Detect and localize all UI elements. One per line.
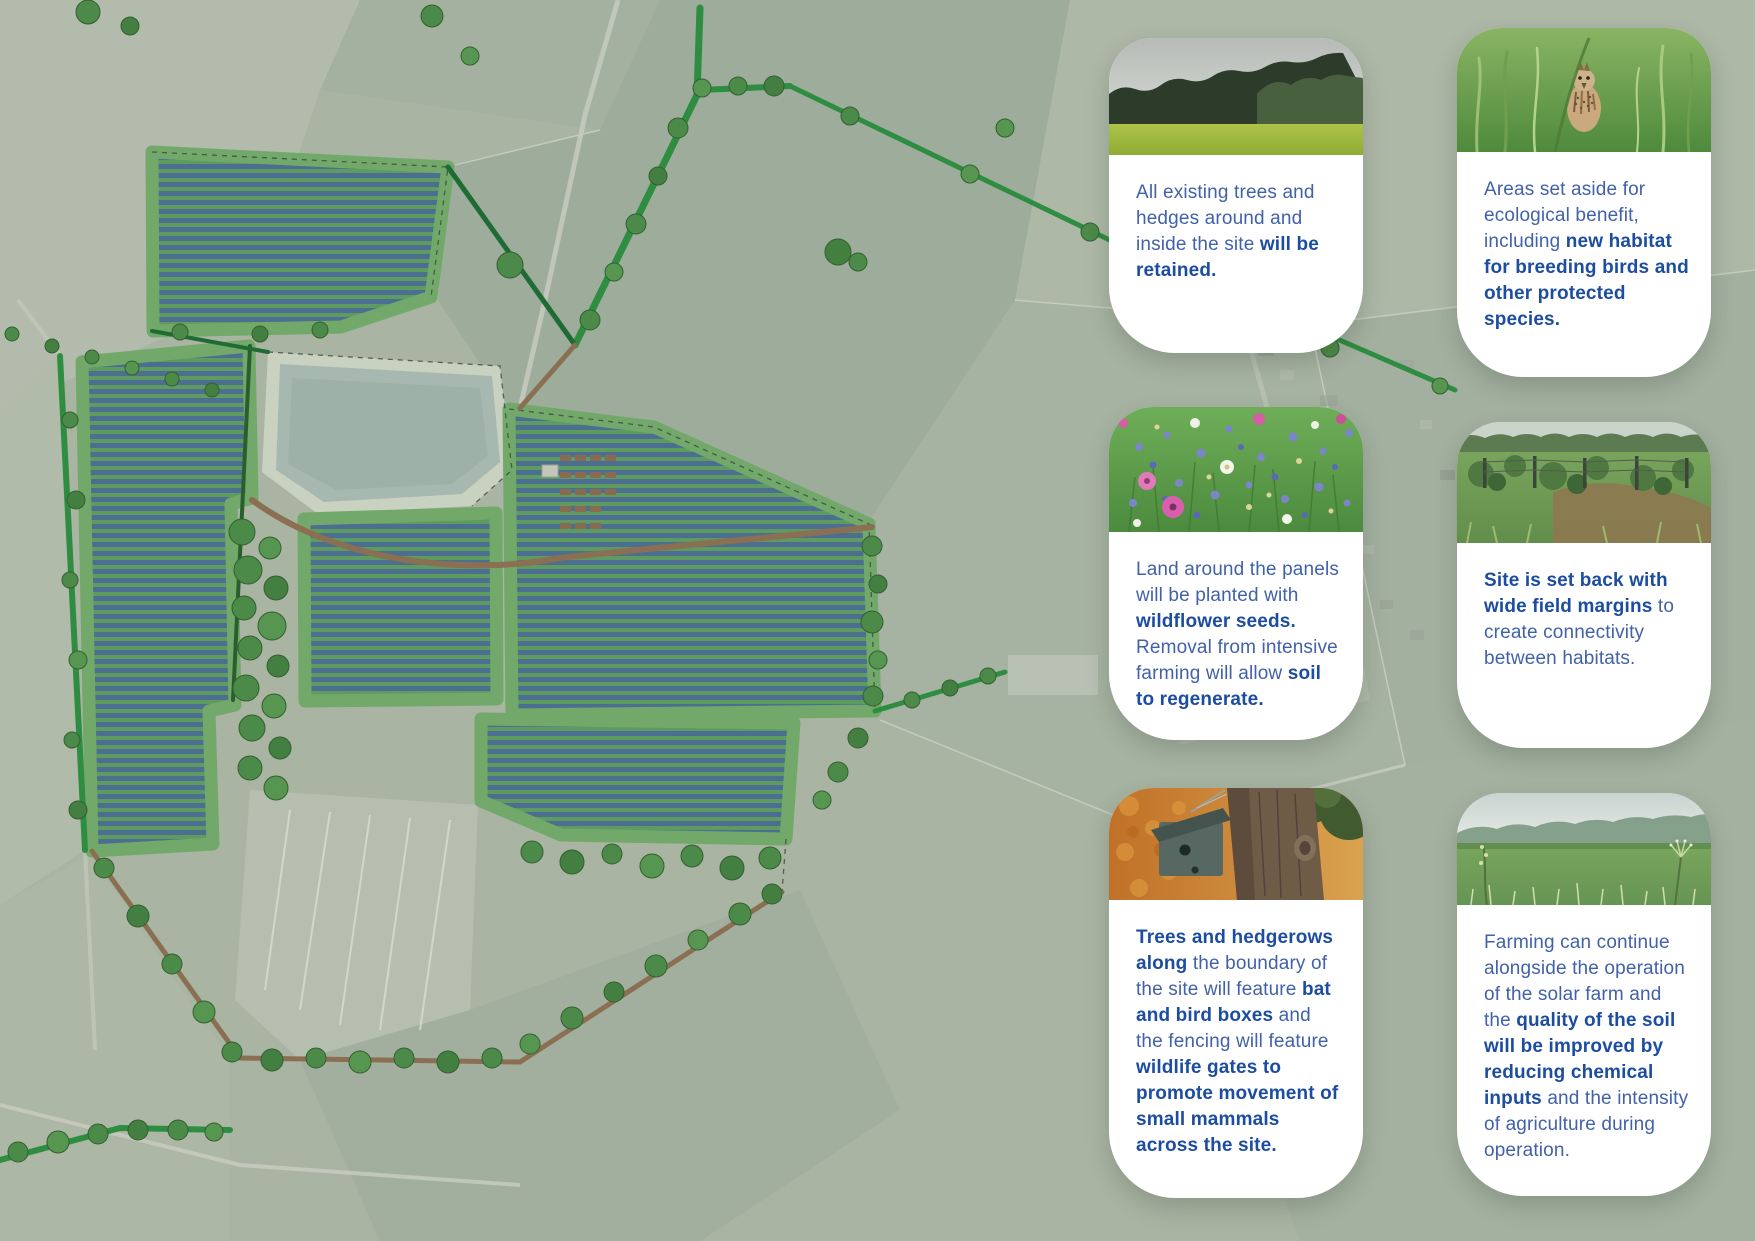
info-card-ecological-areas: Areas set aside for ecological benefit, … xyxy=(1457,28,1711,377)
card-text-segment: wildlife gates to promote movement of sm… xyxy=(1136,1057,1338,1156)
green-field-photo xyxy=(1457,793,1711,905)
card-text: Trees and hedgerows along the boundary o… xyxy=(1136,925,1341,1159)
info-card-trees-retained: All existing trees and hedges around and… xyxy=(1109,38,1363,353)
skylark-in-grass-photo xyxy=(1457,28,1711,152)
card-text: Areas set aside for ecological benefit, … xyxy=(1484,177,1689,333)
info-card-wildflower-seeds: Land around the panels will be planted w… xyxy=(1109,407,1363,740)
consultation-board: All existing trees and hedges around and… xyxy=(0,0,1755,1241)
pond xyxy=(262,352,512,514)
wildflower-meadow-photo xyxy=(1109,407,1363,532)
treeline-and-field-photo xyxy=(1109,38,1363,155)
card-text-segment: Land around the panels will be planted w… xyxy=(1136,559,1339,606)
card-text-segment: Site is set back with wide field margins xyxy=(1484,570,1668,617)
card-text-segment: wildflower seeds. xyxy=(1136,611,1296,632)
card-text: All existing trees and hedges around and… xyxy=(1136,180,1341,284)
solar-array-north xyxy=(152,152,448,331)
card-text: Land around the panels will be planted w… xyxy=(1136,557,1341,713)
card-text: Site is set back with wide field margins… xyxy=(1484,568,1689,672)
info-card-bat-bird-boxes: Trees and hedgerows along the boundary o… xyxy=(1109,788,1363,1198)
bird-box-on-tree-photo xyxy=(1109,788,1363,900)
info-card-field-margins: Site is set back with wide field margins… xyxy=(1457,422,1711,748)
field-margin-fence-photo xyxy=(1457,422,1711,543)
card-text: Farming can continue alongside the opera… xyxy=(1484,930,1689,1164)
info-card-farming-continues: Farming can continue alongside the opera… xyxy=(1457,793,1711,1196)
solar-array-south xyxy=(481,719,794,839)
